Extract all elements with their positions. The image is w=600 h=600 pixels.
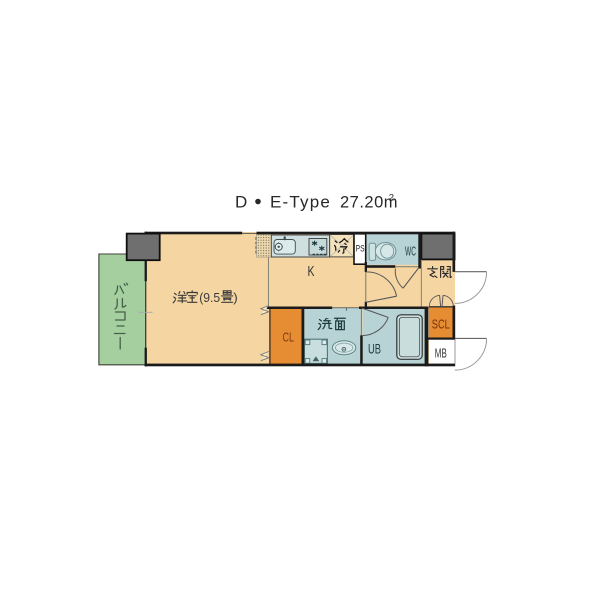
svg-text:E-Type: E-Type [270, 193, 331, 212]
svg-text:SCL: SCL [432, 317, 450, 332]
svg-text:CL: CL [283, 330, 295, 345]
svg-text:WC: WC [405, 244, 416, 258]
svg-text:K: K [308, 264, 315, 280]
svg-text:MB: MB [435, 346, 447, 361]
svg-text:D: D [235, 193, 248, 212]
svg-text:): ) [233, 290, 238, 305]
svg-text:2: 2 [389, 193, 394, 204]
svg-text:PS: PS [356, 243, 365, 253]
svg-text:UB: UB [368, 342, 381, 357]
svg-text:(9.5: (9.5 [199, 290, 220, 305]
